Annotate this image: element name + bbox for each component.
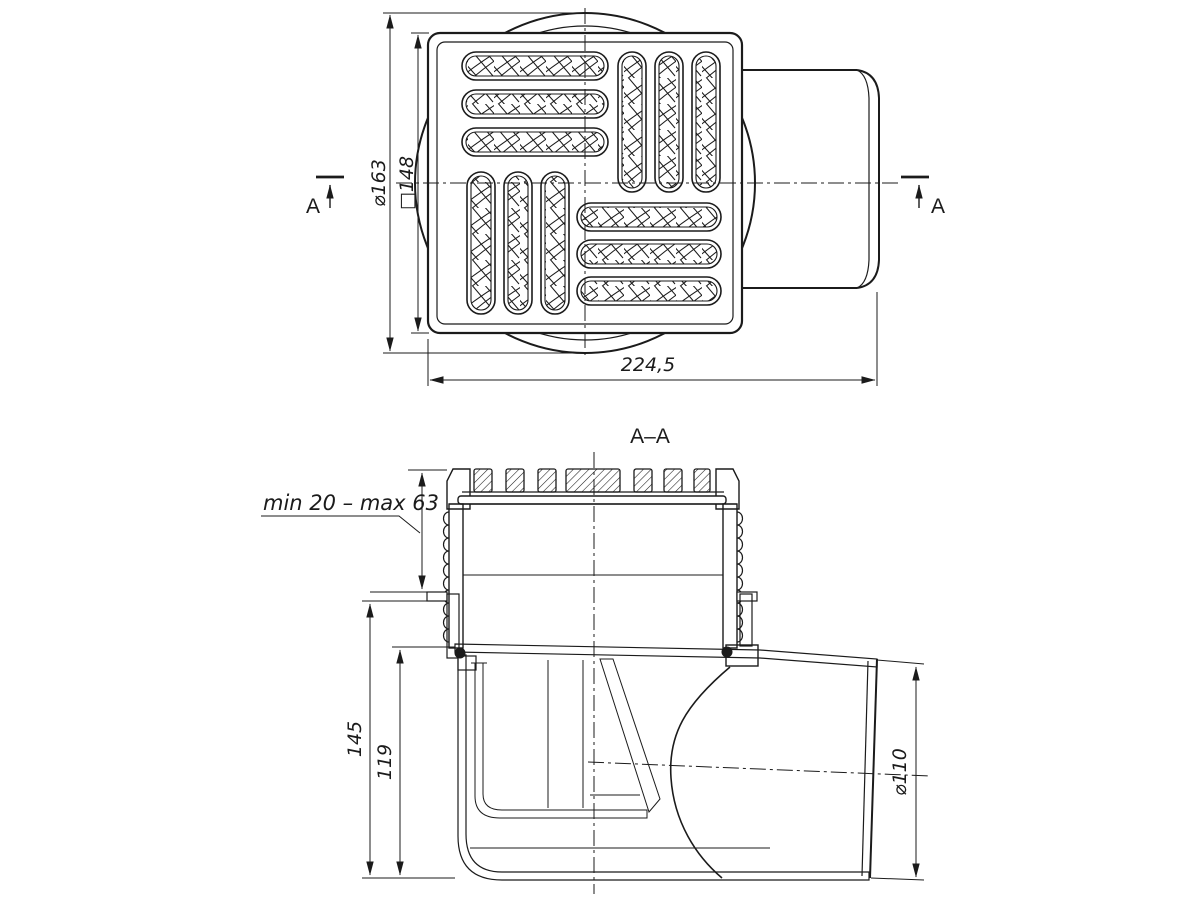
- grate-slot-inner: [508, 176, 528, 310]
- dim-outlet-diameter-label: ⌀110: [889, 748, 911, 796]
- grate-slot-inner: [471, 176, 491, 310]
- dim-body-height-label: 119: [374, 744, 396, 780]
- dim-overall-length-label: 224,5: [621, 354, 675, 376]
- grate-rib-block: [538, 469, 556, 492]
- grate-slot-inner: [696, 56, 716, 188]
- grate-slot-inner: [466, 132, 604, 152]
- section-letter-right: A: [931, 195, 945, 218]
- dim-adjust-range-label: min 20 – max 63: [263, 491, 439, 515]
- grate-rib-block: [694, 469, 710, 492]
- dim-grate-square-label: □148: [396, 156, 418, 210]
- grate-slot-inner: [466, 94, 604, 114]
- dim-flange-diameter-label: ⌀163: [368, 159, 390, 207]
- seal-left: [455, 648, 466, 659]
- grate-rib-block: [566, 469, 620, 492]
- grate-slot-inner: [581, 244, 717, 264]
- grate-rib-block: [506, 469, 524, 492]
- grate-slot-inner: [545, 176, 565, 310]
- dim-total-height-label: 145: [344, 721, 366, 757]
- grate-rib-blocks: [474, 469, 710, 492]
- socket-left-tab: [427, 592, 447, 601]
- section-title: A–A: [630, 425, 670, 448]
- section-letter-left: A: [306, 195, 320, 218]
- grate-slot-inner: [659, 56, 679, 188]
- grate-slot-inner: [622, 56, 642, 188]
- grate-section: [447, 469, 739, 509]
- technical-drawing-floor-drain: ⌀163 □148 224,5 A A A–A: [0, 0, 1200, 900]
- grate-slot-inner: [466, 56, 604, 76]
- grate-rib-block: [634, 469, 652, 492]
- grate-rib-block: [474, 469, 492, 492]
- grate-seat-lip: [458, 496, 726, 504]
- grate-slot-inner: [581, 281, 717, 301]
- seal-right: [722, 647, 733, 658]
- grate-slot-inner: [581, 207, 717, 227]
- grate-rib-block: [664, 469, 682, 492]
